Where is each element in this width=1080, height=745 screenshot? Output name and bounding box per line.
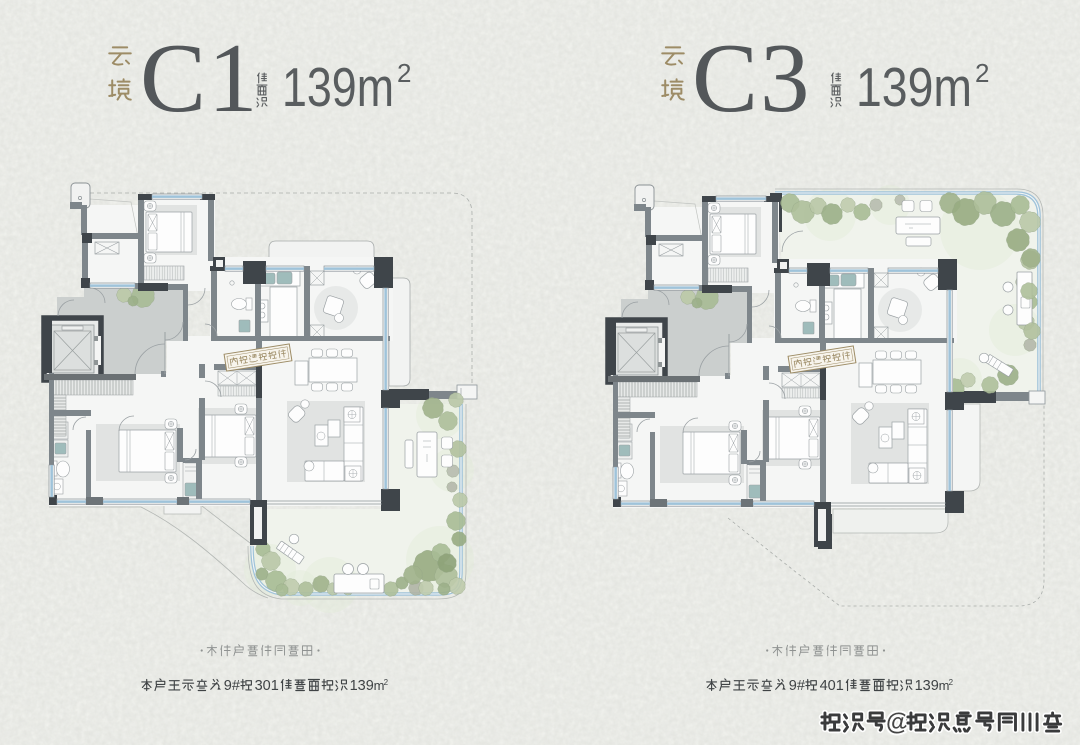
svg-text:301: 301 [255, 678, 279, 694]
svg-text:139m: 139m [282, 56, 394, 118]
svg-text:139m: 139m [856, 56, 972, 118]
svg-text:C1: C1 [140, 24, 260, 133]
svg-text:C3: C3 [692, 24, 812, 133]
svg-text:9#: 9# [224, 678, 240, 694]
svg-text:401: 401 [820, 678, 844, 694]
svg-text:139: 139 [350, 678, 374, 694]
svg-text:2: 2 [384, 678, 389, 687]
svg-text:9#: 9# [789, 678, 805, 694]
svg-text:2: 2 [975, 58, 989, 88]
svg-text:2: 2 [397, 58, 411, 88]
svg-text:2: 2 [949, 678, 954, 687]
svg-text:139: 139 [915, 678, 939, 694]
